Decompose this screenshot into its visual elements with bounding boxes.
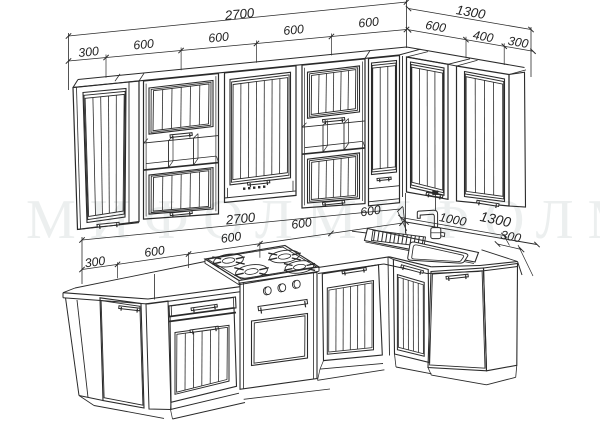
- svg-text:2700: 2700: [224, 210, 256, 228]
- svg-text:300: 300: [84, 254, 106, 271]
- svg-text:600: 600: [220, 229, 242, 246]
- svg-text:2700: 2700: [223, 5, 255, 23]
- svg-text:600: 600: [290, 215, 312, 232]
- svg-text:600: 600: [143, 243, 165, 260]
- svg-text:600: 600: [208, 30, 230, 46]
- svg-text:600: 600: [358, 15, 380, 31]
- svg-text:600: 600: [359, 203, 381, 220]
- svg-text:600: 600: [283, 22, 305, 38]
- svg-text:600: 600: [133, 37, 155, 53]
- svg-text:300: 300: [78, 44, 100, 60]
